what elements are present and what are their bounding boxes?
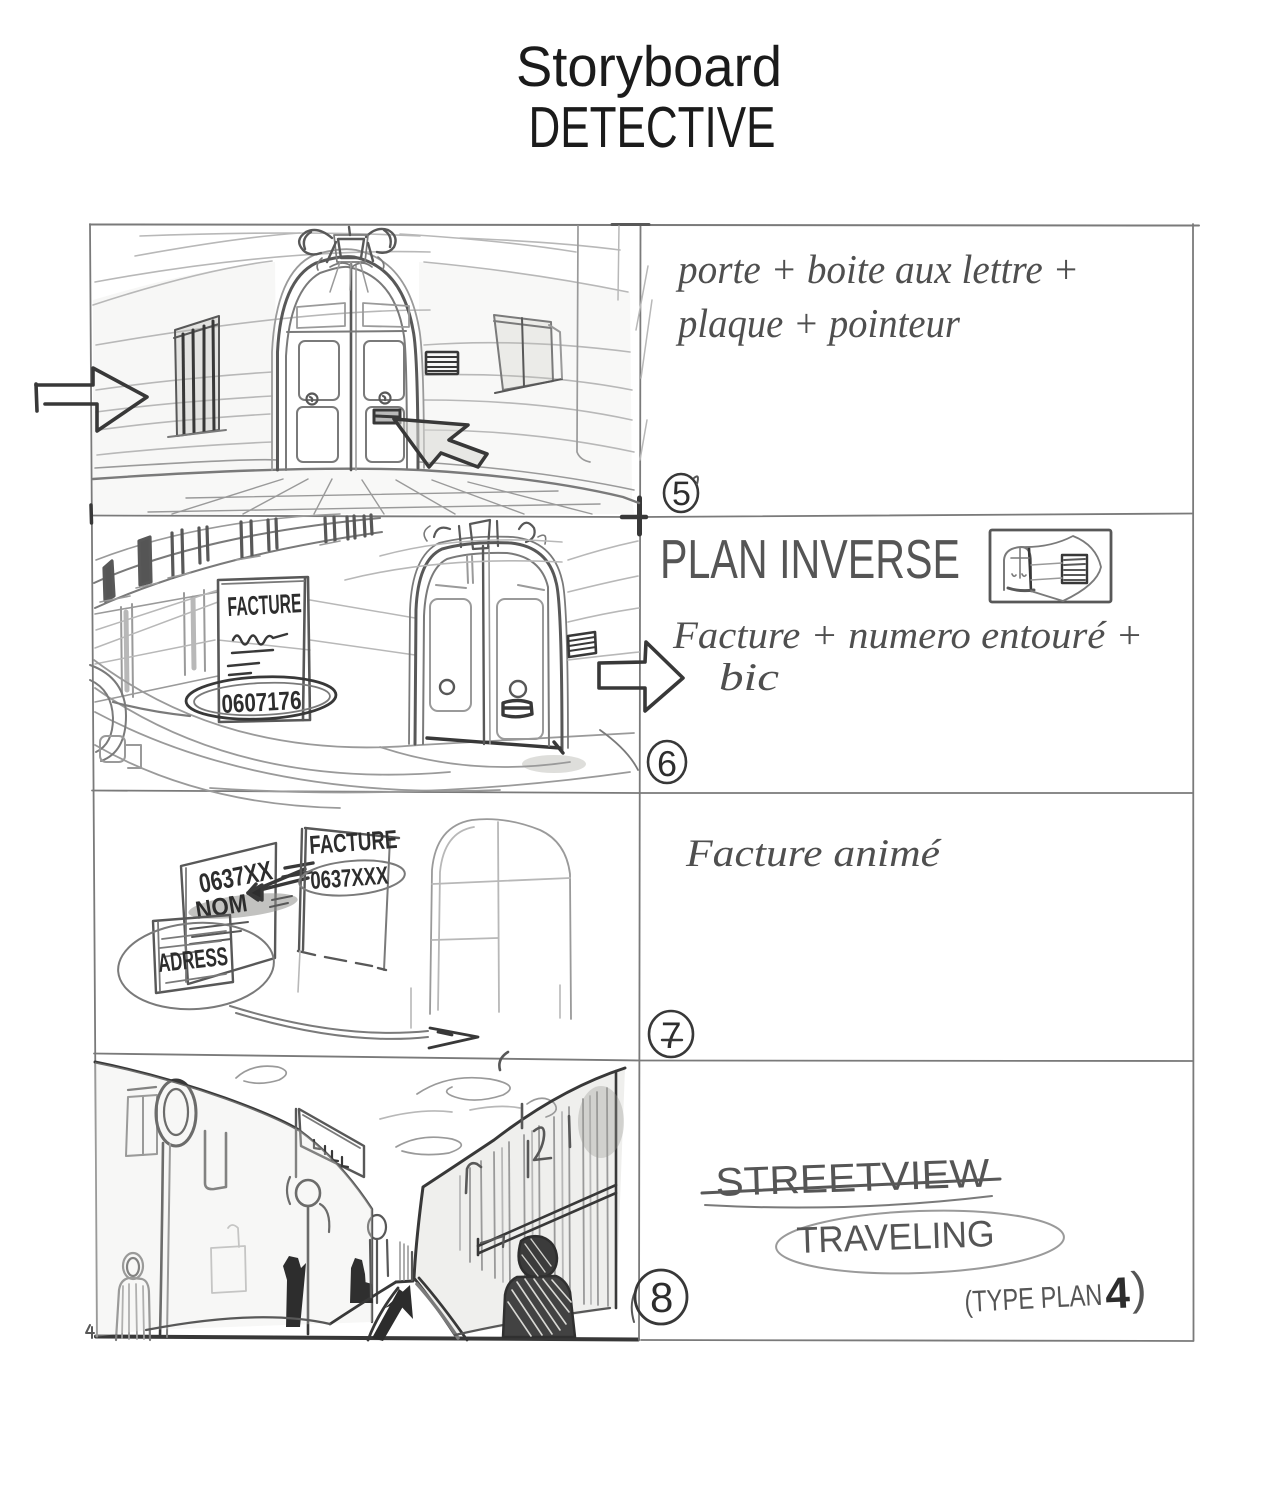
svg-text:(TYPE PLAN: (TYPE PLAN — [964, 1279, 1104, 1319]
svg-text:7: 7 — [661, 1015, 682, 1056]
svg-text:5: 5 — [672, 475, 691, 513]
svg-text:Facture animé: Facture animé — [685, 832, 942, 875]
svg-text:FACTURE: FACTURE — [308, 824, 398, 860]
svg-text:plaque + pointeur: plaque + pointeur — [675, 300, 961, 346]
svg-text:FACTURE: FACTURE — [227, 588, 302, 622]
svg-text:STREETVIEW: STREETVIEW — [715, 1151, 991, 1205]
svg-text:Facture + numero entouré +: Facture + numero entouré + — [672, 614, 1143, 657]
svg-text:0607176: 0607176 — [221, 685, 302, 719]
svg-text:6: 6 — [657, 743, 677, 784]
svg-text:TRAVELING: TRAVELING — [796, 1213, 995, 1261]
svg-text:8: 8 — [650, 1274, 673, 1321]
svg-text:Storyboard: Storyboard — [516, 35, 782, 99]
svg-text:DETECTIVE: DETECTIVE — [529, 95, 776, 160]
svg-text:4: 4 — [1104, 1268, 1132, 1318]
svg-text:porte + boite aux lettre +: porte + boite aux lettre + — [675, 246, 1079, 292]
svg-text:ADRESS: ADRESS — [156, 941, 229, 978]
svg-text:PLAN INVERSE: PLAN INVERSE — [660, 528, 960, 590]
svg-text:bic: bic — [719, 656, 779, 699]
svg-text:): ) — [1130, 1262, 1148, 1315]
